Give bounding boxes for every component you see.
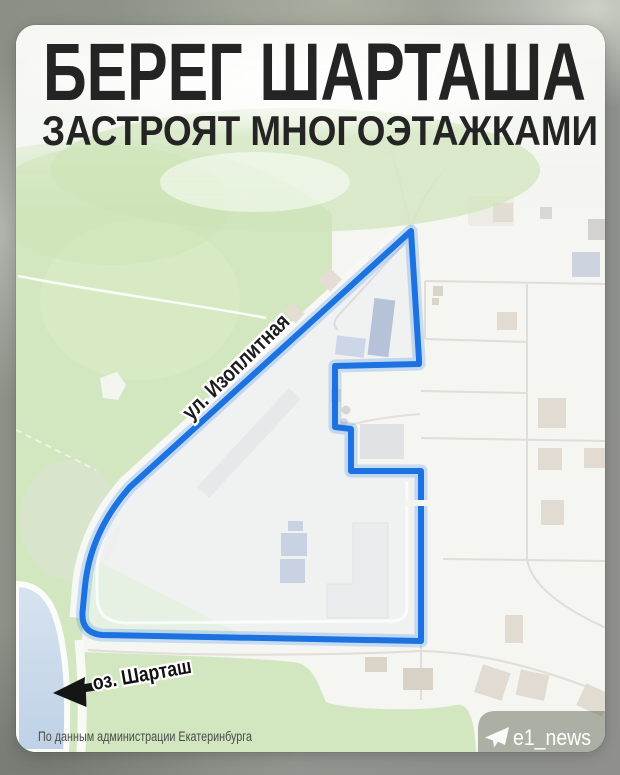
- infographic-card: ул. Изоплитная оз. Шарташ БЕРЕГ ШАРТАША …: [16, 25, 605, 752]
- watermark-text: e1_news: [513, 725, 591, 750]
- watermark-badge: e1_news: [478, 711, 605, 752]
- title-line-2: ЗАСТРОЯТ МНОГОЭТАЖКАМИ: [42, 107, 598, 154]
- title-line-1: БЕРЕГ ШАРТАША: [43, 27, 586, 118]
- map-canvas: ул. Изоплитная оз. Шарташ БЕРЕГ ШАРТАША …: [16, 25, 605, 752]
- page-frame: { "title": { "line1": "БЕРЕГ ШАРТАША", "…: [0, 0, 620, 775]
- attribution-text: По данным администрации Екатеринбурга: [38, 729, 252, 744]
